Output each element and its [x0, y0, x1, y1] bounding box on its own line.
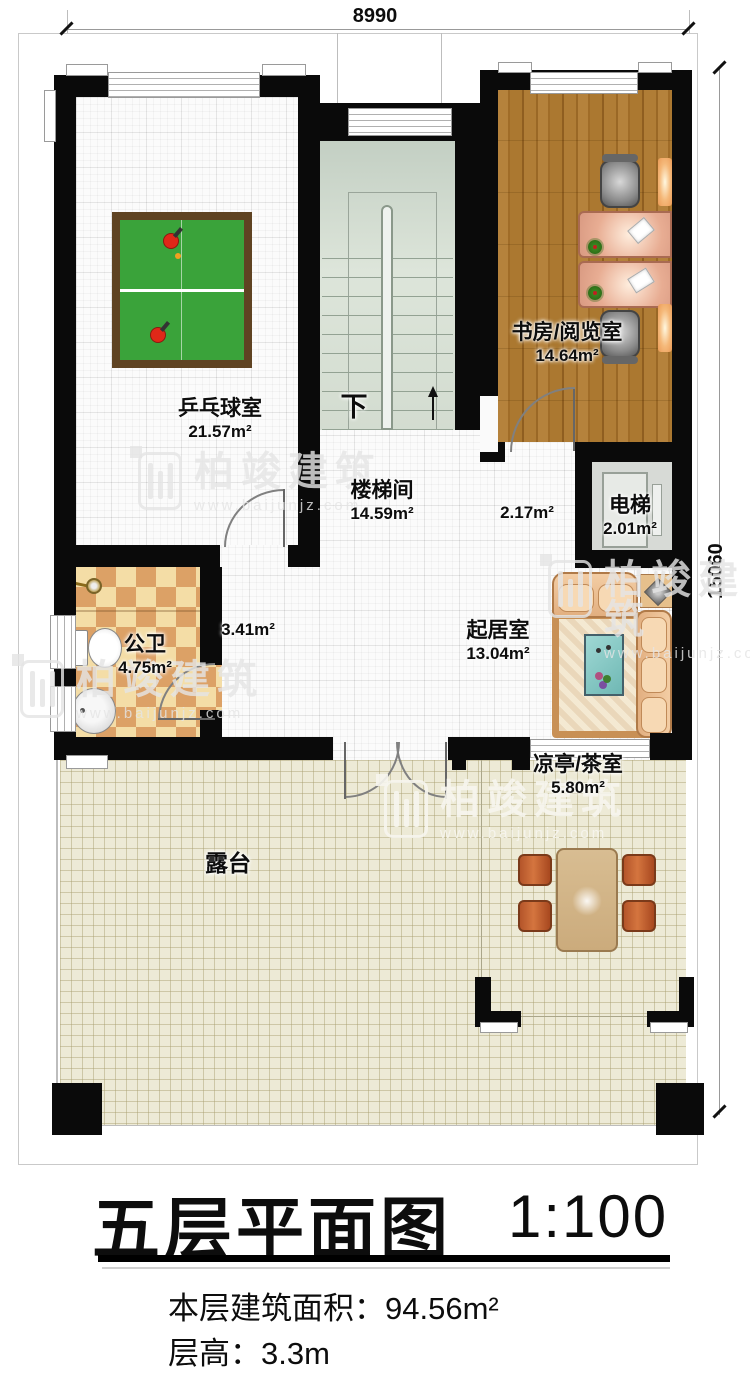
desk-lamp-icon: [658, 304, 672, 352]
stairs-rail: [381, 205, 393, 430]
sink: [72, 688, 116, 734]
window-sill: [262, 64, 306, 76]
room-label-elevator: 电梯 2.01m²: [590, 494, 670, 539]
window-sill: [44, 90, 56, 142]
bathroom-divider: [76, 610, 200, 612]
plant-icon: [644, 578, 672, 606]
room-label-stairwell: 楼梯间 14.59m²: [312, 479, 452, 524]
shower-head-icon: [86, 578, 102, 594]
plant-icon: [588, 286, 602, 300]
sofa: [552, 572, 638, 618]
window-sill: [650, 1022, 688, 1033]
drawing-scale: 1:100: [508, 1182, 668, 1251]
ping-pong-table: [112, 212, 252, 368]
door-leaf: [283, 489, 285, 547]
terrace-bottom-edge: [60, 1125, 686, 1126]
dining-table: [556, 848, 618, 952]
title-underline-shadow: [102, 1267, 670, 1269]
chair: [622, 900, 656, 932]
ball-icon: [175, 253, 181, 259]
floor-area-label: 本层建筑面积：: [168, 1291, 385, 1326]
window-sill: [66, 64, 108, 76]
table-center-line: [120, 289, 244, 292]
chair: [622, 854, 656, 886]
window-sill: [498, 62, 532, 73]
desk: [578, 261, 672, 308]
wall: [650, 733, 692, 760]
paddle-icon: [150, 327, 166, 343]
wall: [455, 398, 480, 430]
wall: [452, 758, 466, 770]
room-label-study: 书房/阅览室 14.64m²: [497, 321, 637, 366]
room-label-terrace: 露台: [188, 850, 268, 877]
window: [108, 72, 260, 98]
window-sill: [480, 1022, 518, 1033]
floor-height-line: 层高：3.3m: [168, 1328, 330, 1373]
floor-plan-page: { "plan": { "dimensions": { "width_label…: [0, 0, 750, 1369]
wall: [672, 70, 692, 760]
floor-height-value: 3.3m: [261, 1336, 330, 1371]
door-opening: [480, 396, 498, 452]
area-label-hall: 2.17m²: [487, 503, 567, 523]
window-sill: [66, 755, 108, 769]
side-table: [640, 574, 674, 608]
room-label-living: 起居室 13.04m²: [428, 619, 568, 664]
floor-area-value: 94.56m²: [385, 1291, 499, 1326]
office-chair: [600, 160, 640, 208]
wall: [575, 442, 692, 462]
sink-tap: [80, 708, 85, 713]
title-underline: [98, 1255, 670, 1262]
pillar: [656, 1083, 704, 1135]
office-chair-back: [602, 154, 638, 162]
desk-lamp-icon: [658, 158, 672, 206]
wall: [54, 545, 220, 567]
window: [348, 108, 452, 136]
floor-height-label: 层高：: [168, 1336, 261, 1371]
stair-direction-label: 下: [334, 392, 374, 424]
wall: [575, 550, 692, 568]
outline-notch-right: [441, 33, 442, 103]
door-leaf: [344, 742, 346, 799]
door-leaf: [445, 742, 447, 799]
floor-area-line: 本层建筑面积：94.56m²: [168, 1283, 499, 1328]
window: [50, 686, 76, 732]
room-label-pavilion: 凉亭/茶室 5.80m²: [508, 753, 648, 798]
pillar: [52, 1083, 102, 1135]
coffee-table: [584, 634, 624, 696]
outline-notch-left: [337, 33, 338, 103]
dim-line-top: [67, 29, 690, 30]
area-label-corridor: 3.41m²: [208, 620, 288, 640]
window: [50, 615, 76, 669]
sofa: [636, 610, 672, 738]
wall: [200, 567, 222, 665]
window-sill: [638, 62, 672, 73]
terrace-left-edge: [56, 760, 58, 1125]
stairs-direction-arrow-tail: [432, 396, 434, 420]
wall: [288, 545, 320, 567]
chair: [518, 854, 552, 886]
dim-width: 8990: [340, 5, 410, 28]
room-label-pingpong: 乒乓球室 21.57m²: [150, 397, 290, 442]
room-label-bathroom: 公卫 4.75m²: [95, 633, 195, 678]
door-leaf: [573, 389, 575, 451]
door-leaf: [158, 718, 215, 720]
table-mid-line: [181, 220, 182, 360]
window: [530, 72, 638, 94]
dim-height: 15060: [705, 536, 727, 606]
flower-icon: [595, 672, 603, 680]
chair: [518, 900, 552, 932]
paddle-icon: [163, 233, 179, 249]
toilet-tank: [74, 630, 88, 666]
plant-icon: [588, 240, 602, 254]
